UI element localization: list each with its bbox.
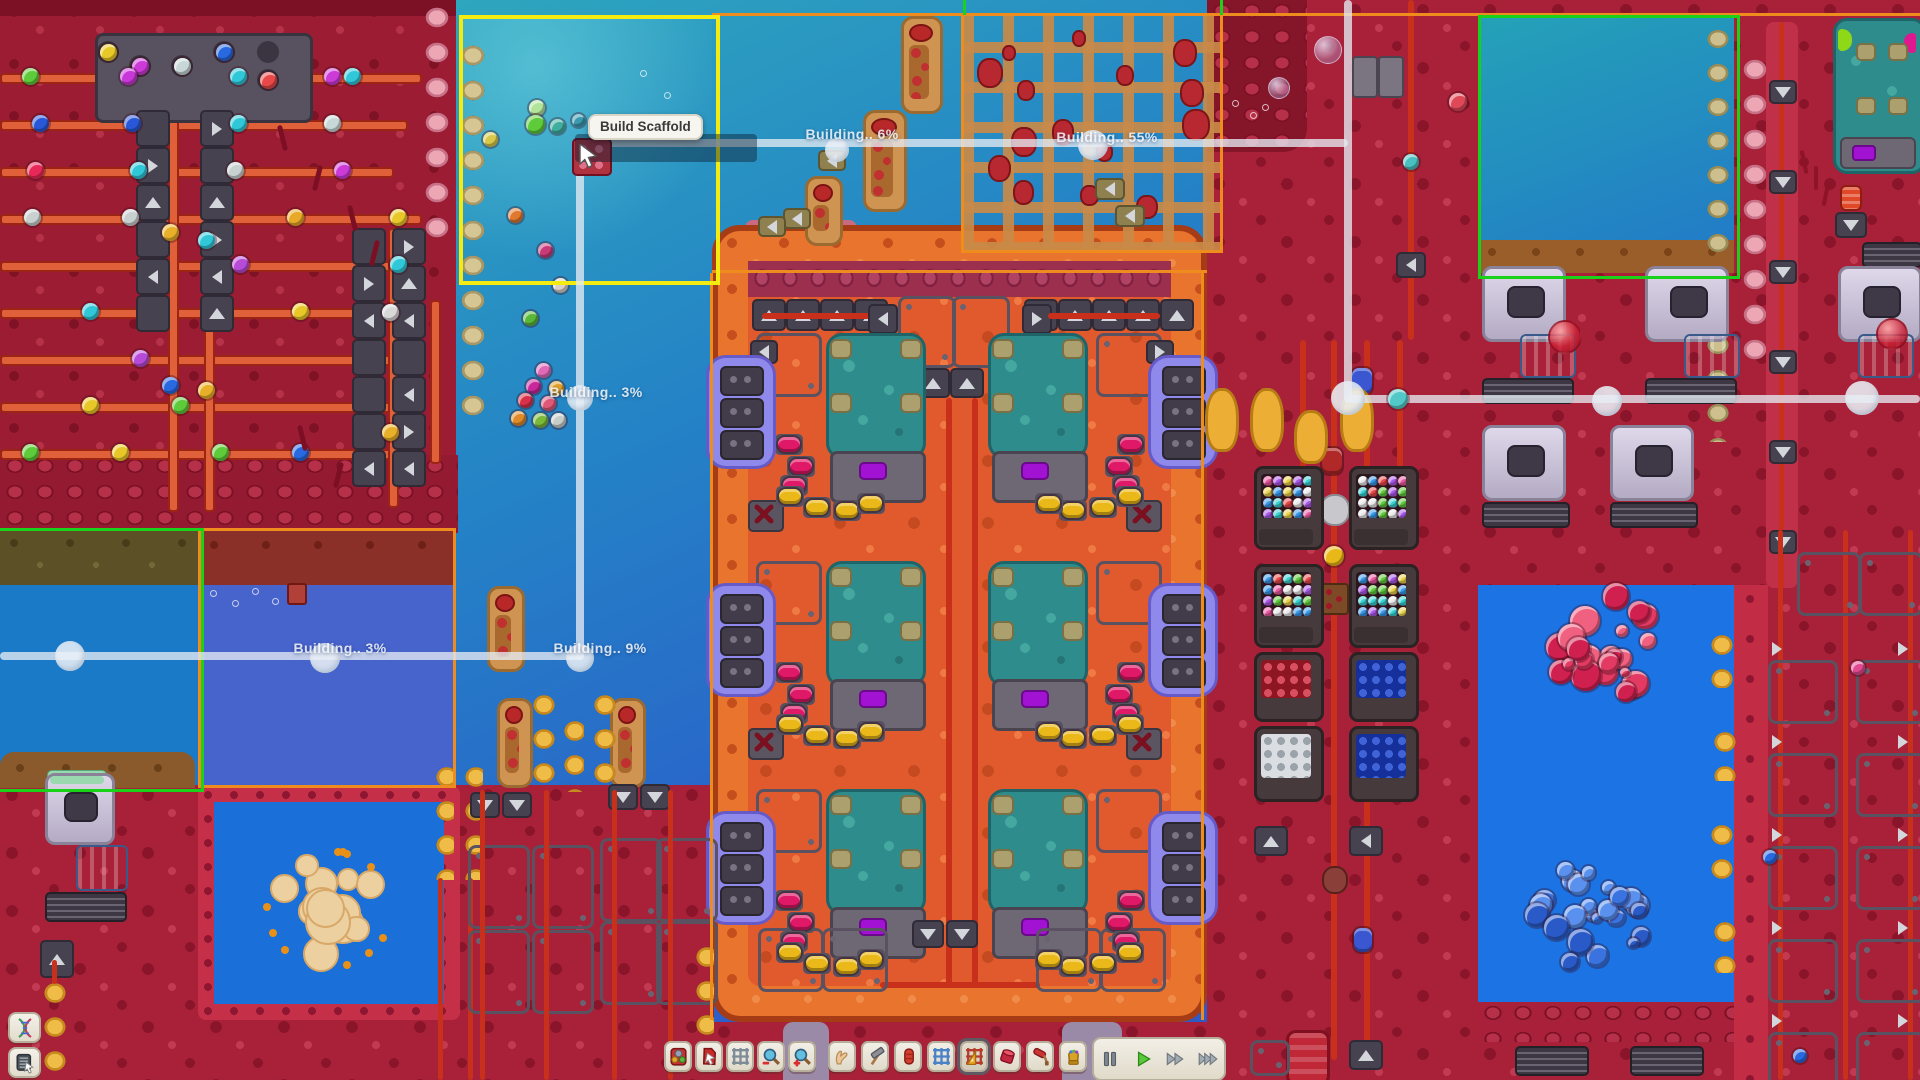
conveyor-belt-tile[interactable] <box>470 792 500 818</box>
storage-bin[interactable] <box>1254 564 1324 648</box>
socket-dot <box>1186 376 1193 383</box>
tank-socket <box>1162 594 1206 624</box>
conveyor-belt-tile[interactable] <box>640 784 670 810</box>
machine-plate[interactable] <box>532 930 594 1014</box>
socket-dot <box>730 440 737 447</box>
bin-lip <box>1259 529 1313 545</box>
socket-dot <box>1172 376 1179 383</box>
machine-knob <box>992 567 1014 587</box>
conveyor-belt-tile[interactable] <box>200 295 234 332</box>
terrain-mid-column <box>1207 0 1478 1080</box>
conveyor-belt-tile[interactable] <box>1115 205 1145 227</box>
sparkle <box>1262 104 1269 111</box>
conveyor-belt-tile[interactable] <box>783 208 811 229</box>
building-progress-label: Building.. 6% <box>805 126 898 142</box>
amber-sprout <box>269 929 277 937</box>
gauntlet-tool-button[interactable] <box>1059 1041 1087 1072</box>
feed-pipe <box>762 313 870 319</box>
pipe-arrow <box>1898 735 1908 749</box>
stored-orb <box>1368 487 1378 497</box>
storage-bin[interactable] <box>1349 564 1419 648</box>
cocoon-core <box>505 727 519 773</box>
pan-tool-button[interactable] <box>828 1041 856 1072</box>
dirt-red <box>198 531 456 585</box>
machine-plate[interactable] <box>1768 939 1838 1003</box>
machine-knob <box>900 339 922 359</box>
gold-capsule <box>860 496 882 511</box>
building-progress-label: Building.. 3% <box>293 640 386 656</box>
fastest-forward-icon <box>1197 1048 1219 1070</box>
resource-orb <box>390 209 407 226</box>
storage-bin[interactable] <box>1254 466 1324 550</box>
fast-forward-button[interactable] <box>1162 1046 1188 1072</box>
resource-orb <box>82 303 99 320</box>
machine-knob <box>1856 97 1876 115</box>
blue-bubble <box>1628 938 1638 948</box>
resource-orb <box>1851 661 1865 675</box>
resource-orb <box>232 256 249 273</box>
amber-growth <box>1708 915 1740 973</box>
stored-orb <box>1398 607 1406 616</box>
arrow-U-icon <box>925 378 941 389</box>
stored-orb <box>1368 596 1378 606</box>
socket-dot <box>744 864 751 871</box>
arrow-D-icon <box>1775 87 1791 98</box>
stored-orb <box>1378 509 1388 518</box>
storage-bin[interactable] <box>1349 466 1419 550</box>
pipe-tool-button[interactable] <box>894 1041 922 1072</box>
arrow-L-icon <box>404 462 414 476</box>
socket-dot <box>1186 668 1193 675</box>
grill-machine[interactable] <box>45 892 127 922</box>
sparkle <box>272 598 279 605</box>
stored-orb <box>1273 574 1283 584</box>
conveyor-belt-tile[interactable] <box>758 216 786 237</box>
x-mark-icon <box>750 502 778 526</box>
socket-dot <box>744 668 751 675</box>
fluid-tank[interactable] <box>1148 583 1218 697</box>
machine-plate[interactable] <box>468 930 530 1014</box>
amber-growth <box>1705 818 1739 882</box>
fast-forward-icon <box>1164 1048 1186 1070</box>
stored-orb <box>1263 596 1273 606</box>
resource-orb <box>1324 546 1344 566</box>
bin-window <box>1261 660 1311 698</box>
cocoon-opening <box>909 24 933 42</box>
arrow-R-icon <box>148 159 158 173</box>
conveyor-belt-tile[interactable] <box>1769 170 1797 194</box>
machine-knob <box>992 795 1014 815</box>
fluid-tank[interactable] <box>706 583 776 697</box>
machine-plate[interactable] <box>532 845 594 929</box>
conveyor-belt-tile[interactable] <box>136 258 170 295</box>
machine-plate[interactable] <box>1856 939 1920 1003</box>
carried-stone <box>1320 494 1350 526</box>
tank-socket <box>720 658 764 688</box>
conveyor-belt-tile[interactable] <box>1349 1040 1383 1070</box>
cocoon-opening <box>618 706 636 724</box>
machine-knob <box>830 621 852 641</box>
socket-dot <box>730 668 737 675</box>
fluid-tank[interactable] <box>1148 811 1218 925</box>
conveyor-pipe <box>1779 22 1784 588</box>
machine-knob <box>992 339 1014 359</box>
magenta-capsule <box>1108 915 1130 930</box>
gold-capsule <box>1038 496 1060 511</box>
conveyor-belt-tile[interactable] <box>946 920 978 948</box>
cocoon-core <box>618 727 632 773</box>
stored-orb <box>1388 607 1398 616</box>
resource-orb <box>390 256 407 273</box>
conveyor-belt-tile[interactable] <box>868 304 898 334</box>
stored-orb <box>1358 509 1368 518</box>
stored-orb <box>1388 487 1398 497</box>
conveyor-belt-tile[interactable] <box>1095 178 1125 200</box>
tank-socket <box>720 886 764 916</box>
conveyor-belt-tile[interactable] <box>40 940 74 978</box>
tank-socket <box>720 430 764 460</box>
scaffold-material <box>1180 79 1204 107</box>
cylinder-icon <box>997 1046 1018 1067</box>
stored-orb <box>1303 607 1311 616</box>
stored-orb <box>1283 509 1293 518</box>
glass-tank[interactable] <box>1684 334 1740 378</box>
bioreactor-machine[interactable] <box>988 561 1088 733</box>
socket-dot <box>744 636 751 643</box>
machine-plate[interactable] <box>656 838 718 922</box>
machine-plate[interactable] <box>1768 753 1838 817</box>
scaffold-material <box>1116 65 1134 86</box>
scaffold-material <box>1182 109 1209 141</box>
stored-orb <box>1358 585 1368 595</box>
conveyor-belt-tile[interactable] <box>200 258 234 295</box>
stored-orb <box>1273 476 1283 486</box>
transport-pipe <box>0 308 394 319</box>
storage-bin[interactable] <box>1349 652 1419 722</box>
feed-pipe <box>438 878 443 1080</box>
dna-icon <box>13 1016 37 1040</box>
socket-dot <box>730 832 737 839</box>
arrow-D-icon <box>954 929 970 940</box>
press-machine[interactable] <box>1610 425 1694 501</box>
gold-capsule <box>1062 959 1084 974</box>
stored-orb <box>1388 509 1398 518</box>
gold-capsule <box>1038 724 1060 739</box>
tank-socket <box>1162 626 1206 656</box>
bin-window <box>1261 474 1311 518</box>
transport-pipe <box>430 300 441 464</box>
stored-orb <box>1368 476 1378 486</box>
sparkle <box>252 588 259 595</box>
machine-knob <box>992 849 1014 869</box>
zone-line <box>1220 13 1223 253</box>
machine-knob <box>830 795 852 815</box>
select-tool-button[interactable] <box>695 1041 723 1072</box>
conveyor-belt-tile[interactable] <box>352 302 386 339</box>
bin-window <box>1261 572 1311 616</box>
machine-plate[interactable] <box>1859 552 1920 616</box>
tank-socket <box>1162 854 1206 884</box>
stored-orb <box>1263 509 1273 518</box>
building-progress-label: Building.. 3% <box>549 384 642 400</box>
blue-bubble <box>1544 915 1569 940</box>
play-button[interactable] <box>1130 1046 1156 1072</box>
resource-orb <box>162 377 179 394</box>
conveyor-belt-tile[interactable] <box>1769 530 1797 554</box>
machine-knob <box>1062 567 1084 587</box>
resource-orb <box>162 224 179 241</box>
gold-capsule <box>1038 952 1060 967</box>
arrow-U-icon <box>209 197 225 208</box>
network-line <box>1348 395 1920 403</box>
tank-tool-button[interactable] <box>993 1041 1021 1072</box>
pool-scallop-bottom <box>1478 1002 1736 1042</box>
conveyor-tool-button[interactable] <box>927 1041 955 1072</box>
stored-orb <box>1283 498 1293 508</box>
stored-orb <box>1293 487 1303 497</box>
press-die <box>1670 286 1708 318</box>
conveyor-belt-tile[interactable] <box>352 339 386 376</box>
machine-plate[interactable] <box>600 838 662 922</box>
conveyor-belt-tile[interactable] <box>352 228 386 265</box>
bioreactor-machine[interactable] <box>1833 18 1920 174</box>
machine-plate[interactable] <box>1856 660 1920 724</box>
resource-orb <box>198 232 215 249</box>
gold-capsule <box>836 731 858 746</box>
machine-plate[interactable] <box>468 845 530 929</box>
stored-orb <box>1398 487 1406 497</box>
cocoon-core <box>813 205 829 231</box>
machine-knob <box>1888 97 1908 115</box>
mouse-cursor <box>578 144 602 175</box>
stored-orb <box>1263 607 1273 616</box>
zoom-in-icon <box>792 1046 813 1067</box>
conveyor-belt-tile[interactable] <box>1396 252 1426 278</box>
conveyor-belt-tile[interactable] <box>200 184 234 221</box>
conveyor-belt-tile[interactable] <box>200 110 234 147</box>
stored-orb <box>1378 607 1388 616</box>
conveyor-belt-tile[interactable] <box>352 265 386 302</box>
grid-toggle-button[interactable] <box>726 1041 754 1072</box>
machine-knob <box>830 849 852 869</box>
machine-plate[interactable] <box>1797 552 1861 616</box>
pause-button[interactable] <box>1097 1046 1123 1072</box>
scaffold-tool-button[interactable] <box>960 1041 988 1072</box>
conveyor-belt-tile[interactable] <box>912 920 944 948</box>
stored-orb <box>1273 498 1283 508</box>
pipe-arrow <box>1772 828 1782 842</box>
glass-tank[interactable] <box>76 845 128 891</box>
machine-plate[interactable] <box>1768 660 1838 724</box>
magenta-capsule <box>1108 687 1130 702</box>
conveyor-belt-tile[interactable] <box>136 184 170 221</box>
bubble-dome <box>1548 320 1582 354</box>
conveyor-belt-tile[interactable] <box>1769 350 1797 374</box>
scaffold-material <box>988 155 1012 182</box>
network-line <box>1344 0 1352 403</box>
resource-orb <box>227 162 244 179</box>
feed-pipe <box>612 790 617 1080</box>
amber-growth <box>1250 388 1284 452</box>
machine-flag <box>1838 29 1852 51</box>
floating-crate <box>287 583 307 605</box>
arrow-D-icon <box>1775 177 1791 188</box>
network-node <box>1331 381 1365 415</box>
conveyor-belt-tile[interactable] <box>392 450 426 487</box>
stored-orb <box>1378 596 1388 606</box>
grill-machine[interactable] <box>1630 1046 1704 1076</box>
conveyor-belt-tile[interactable] <box>392 376 426 413</box>
crate <box>1378 56 1404 98</box>
capsule-machine[interactable] <box>1286 1030 1330 1080</box>
resource-orb <box>526 379 541 394</box>
storage-bin[interactable] <box>1349 726 1419 802</box>
orb-slot <box>257 41 279 63</box>
bioreactor-machine[interactable] <box>826 561 926 733</box>
conveyor-belt-tile[interactable] <box>502 792 532 818</box>
socket-dot <box>744 408 751 415</box>
bioreactor-machine[interactable] <box>988 333 1088 505</box>
zone-line <box>198 528 456 531</box>
machine-gem <box>1852 145 1876 161</box>
stored-orb <box>1388 498 1398 508</box>
amber-pillar <box>558 714 584 792</box>
magenta-capsule <box>778 437 800 452</box>
resource-orb <box>112 444 129 461</box>
overlay-resources-button[interactable] <box>664 1041 692 1072</box>
cocoon-core <box>495 615 511 657</box>
gauntlet-icon <box>1063 1046 1084 1067</box>
conveyor-belt-tile[interactable] <box>352 413 386 450</box>
stored-orb <box>1283 596 1293 606</box>
resource-orb <box>551 413 566 428</box>
resource-orb <box>24 209 41 226</box>
bin-window <box>1356 572 1406 616</box>
scaffold-material <box>1072 30 1087 47</box>
conveyor-belt-tile[interactable] <box>1349 826 1383 856</box>
list-icon <box>13 1051 37 1075</box>
zoom-out-icon <box>761 1046 782 1067</box>
tank-socket <box>1162 822 1206 852</box>
paint-tool-button[interactable] <box>1026 1041 1054 1072</box>
pipe-icon <box>898 1046 919 1067</box>
conveyor-belt-tile[interactable] <box>352 376 386 413</box>
tank-socket <box>1162 430 1206 460</box>
fluid-tank[interactable] <box>706 355 776 469</box>
machine-knob <box>1062 339 1084 359</box>
machine-plate[interactable] <box>1856 753 1920 817</box>
arrow-D-icon <box>1775 357 1791 368</box>
conveyor-belt-tile[interactable] <box>352 450 386 487</box>
conveyor-belt-tile[interactable] <box>1835 212 1867 238</box>
stored-orb <box>1368 509 1378 518</box>
orders-button[interactable] <box>8 1047 41 1078</box>
grill-machine[interactable] <box>1610 502 1698 528</box>
fastest-forward-button[interactable] <box>1195 1046 1221 1072</box>
magenta-capsule <box>790 687 812 702</box>
machine-plate[interactable] <box>1856 1032 1920 1080</box>
grill-machine[interactable] <box>1862 242 1920 268</box>
bin-window <box>1356 474 1406 518</box>
conveyor-belt-tile[interactable] <box>1769 440 1797 464</box>
storage-bin[interactable] <box>1254 726 1324 802</box>
grill-machine[interactable] <box>1515 1046 1589 1076</box>
arrow-U-icon <box>959 378 975 389</box>
stored-orb <box>1378 585 1388 595</box>
conveyor-belt-tile[interactable] <box>1022 304 1052 334</box>
research-button[interactable] <box>8 1012 41 1043</box>
arrow-R-icon <box>212 122 222 136</box>
socket-dot <box>730 636 737 643</box>
machine-plate[interactable] <box>600 921 662 1005</box>
zoom-in-button[interactable] <box>788 1041 816 1072</box>
scaffold-cocoon[interactable] <box>901 16 943 114</box>
zone-line <box>961 250 1223 253</box>
conveyor-belt-tile[interactable] <box>136 110 170 147</box>
stored-orb <box>1358 487 1368 497</box>
conveyor-belt-tile[interactable] <box>392 339 426 376</box>
build-tool-button[interactable] <box>861 1041 889 1072</box>
conveyor-belt-tile[interactable] <box>136 295 170 332</box>
socket-dot <box>1186 832 1193 839</box>
stored-orb <box>1358 607 1368 616</box>
stored-orb <box>1398 585 1406 595</box>
magenta-capsule <box>1120 665 1142 680</box>
machine-plate[interactable] <box>1768 846 1838 910</box>
stored-orb <box>1398 509 1406 518</box>
machine-knob <box>900 795 922 815</box>
storage-bin[interactable] <box>1254 652 1324 722</box>
conveyor-belt-tile[interactable] <box>1254 826 1288 856</box>
conveyor-belt-tile[interactable] <box>1769 260 1797 284</box>
amber-sprout <box>281 946 289 954</box>
building-progress-label: Building.. 55% <box>1056 129 1157 145</box>
socket-dot <box>1186 440 1193 447</box>
tank-socket <box>720 822 764 852</box>
socket-dot <box>744 832 751 839</box>
machine-plate[interactable] <box>1856 846 1920 910</box>
feed-pipe <box>1408 0 1414 340</box>
stored-orb <box>1293 607 1303 616</box>
conveyor-belt-tile[interactable] <box>1769 80 1797 104</box>
arrow-D-icon <box>509 800 525 811</box>
conveyor-belt-tile[interactable] <box>1160 299 1194 331</box>
machine-plate[interactable] <box>1250 1040 1290 1076</box>
stored-orb <box>1273 509 1283 518</box>
arrow-L-icon <box>792 212 802 226</box>
orb-machine-icon <box>668 1046 689 1067</box>
selection-tick <box>963 0 966 15</box>
press-machine[interactable] <box>1482 425 1566 501</box>
stored-orb <box>1358 498 1368 508</box>
zoom-out-button[interactable] <box>757 1041 785 1072</box>
pipe-arrow <box>1772 1014 1782 1028</box>
machine-gem <box>859 462 887 480</box>
crate <box>1352 56 1378 98</box>
carried-crate <box>1321 583 1349 615</box>
conveyor-strip[interactable] <box>1766 22 1798 588</box>
stored-orb <box>1263 487 1273 497</box>
grill-machine[interactable] <box>1482 502 1570 528</box>
stored-orb <box>1263 498 1273 508</box>
socket-dot <box>1172 896 1179 903</box>
coral-sprig <box>1814 166 1818 190</box>
conveyor-belt-tile[interactable] <box>950 368 984 398</box>
machine-knob <box>830 393 852 413</box>
cocoon-opening <box>505 706 523 724</box>
bioreactor-machine[interactable] <box>826 333 926 505</box>
socket-dot <box>1172 668 1179 675</box>
